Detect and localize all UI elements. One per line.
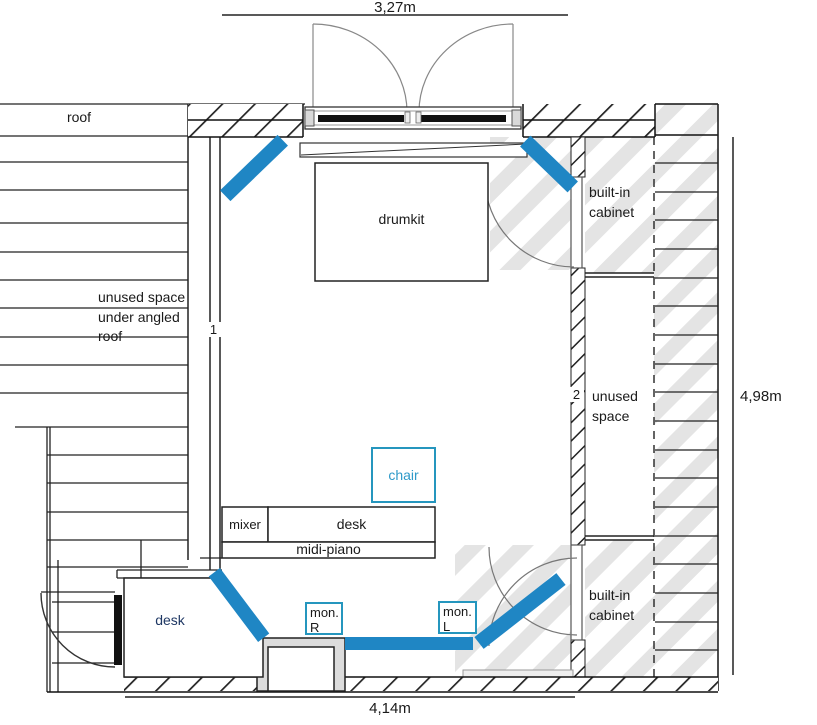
cabinet-door-upper <box>571 177 582 268</box>
floor-plan-drawing <box>0 0 817 725</box>
speaker-bar-bottom <box>345 637 473 650</box>
monitor-left-label: mon. L <box>438 601 477 634</box>
unused-left-line2: under angled <box>98 308 185 328</box>
furniture <box>124 163 488 677</box>
unused-space-left-label: unused space under angled roof <box>98 288 185 347</box>
entry-door <box>41 592 122 667</box>
chimney-column <box>257 638 345 691</box>
drumkit-label: drumkit <box>315 211 488 227</box>
dimension-bottom: 4,14m <box>330 700 450 717</box>
corner-desk-label: desk <box>130 612 210 628</box>
speaker-top-left <box>220 135 288 201</box>
wall-marker-2: 2 <box>569 387 584 402</box>
unused-space-right-label: unused space <box>592 386 638 426</box>
built-in-cabinet-bottom-label: built-in cabinet <box>589 585 634 625</box>
bottom-wall <box>47 677 718 692</box>
cabinet-door-lower <box>571 545 582 640</box>
mixer-label: mixer <box>222 507 268 542</box>
monitor-right-label: mon. R <box>305 602 343 635</box>
unused-left-line1: unused space <box>98 288 185 308</box>
wall-marker-1: 1 <box>206 322 221 337</box>
left-wall <box>188 104 220 573</box>
radiator <box>300 143 527 157</box>
desk-label: desk <box>268 507 435 542</box>
built-in-cabinet-top-label: built-in cabinet <box>589 182 634 222</box>
chair-label: chair <box>372 448 435 502</box>
midi-piano-label: midi-piano <box>222 541 435 558</box>
angled-roof-stripe-zones <box>455 104 718 677</box>
unused-left-line3: roof <box>98 327 185 347</box>
double-door-top <box>305 24 521 129</box>
door-leaf-right <box>420 115 506 122</box>
door-leaf-left <box>318 115 404 122</box>
roof-label: roof <box>49 109 109 125</box>
floor-plan: 3,27m roof unused space under angled roo… <box>0 0 817 725</box>
entry-door-panel <box>114 595 122 665</box>
dimension-top: 3,27m <box>222 0 568 16</box>
dimension-right: 4,98m <box>740 388 782 405</box>
